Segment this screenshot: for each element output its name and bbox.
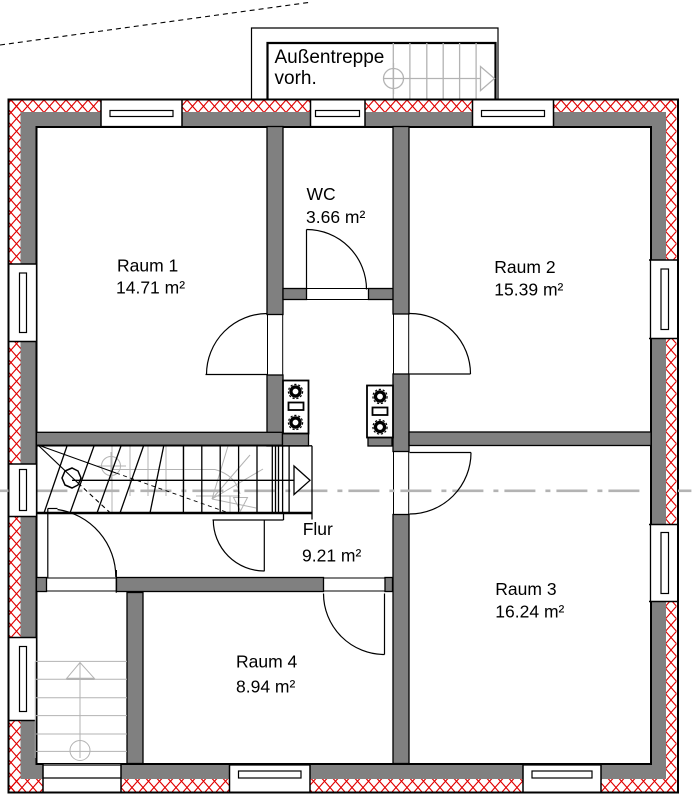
svg-text:WC: WC	[307, 184, 336, 204]
svg-text:vorh.: vorh.	[275, 68, 317, 89]
svg-text:14.71 m²: 14.71 m²	[116, 278, 185, 298]
svg-text:Raum 3: Raum 3	[495, 579, 556, 599]
svg-text:Raum 4: Raum 4	[236, 652, 298, 672]
svg-text:8.94 m²: 8.94 m²	[236, 677, 295, 697]
svg-text:3.66 m²: 3.66 m²	[306, 207, 365, 227]
svg-text:Raum 2: Raum 2	[494, 257, 555, 277]
svg-text:Flur: Flur	[303, 519, 333, 539]
svg-text:16.24 m²: 16.24 m²	[495, 602, 564, 622]
svg-text:Raum 1: Raum 1	[117, 256, 178, 276]
svg-text:15.39 m²: 15.39 m²	[494, 279, 563, 299]
svg-text:9.21 m²: 9.21 m²	[302, 546, 361, 566]
svg-text:Außentreppe: Außentreppe	[275, 47, 385, 68]
